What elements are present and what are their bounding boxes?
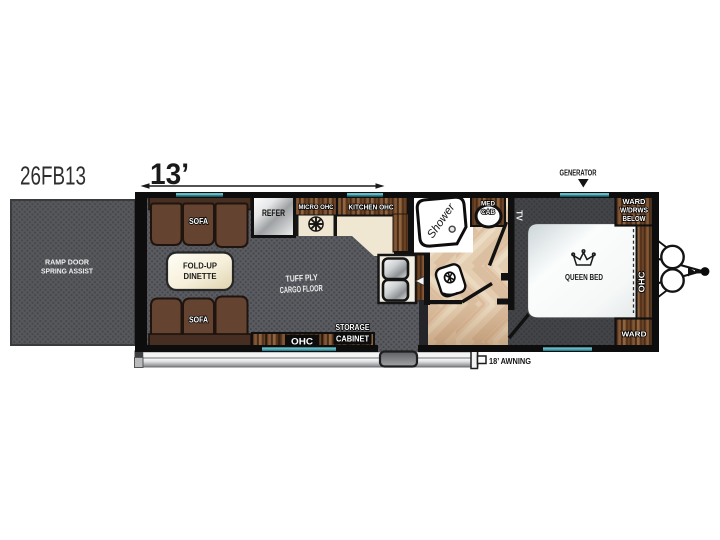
svg-text:BELOW: BELOW [623, 216, 646, 223]
svg-text:QUEEN BED: QUEEN BED [565, 272, 603, 282]
svg-text:WARD: WARD [623, 199, 646, 206]
svg-text:SOFA: SOFA [189, 217, 208, 226]
svg-text:CABINET: CABINET [336, 334, 370, 344]
svg-text:TUFF PLY: TUFF PLY [285, 272, 318, 284]
svg-text:OHC: OHC [638, 271, 647, 292]
svg-text:SPRING ASSIST: SPRING ASSIST [41, 267, 94, 276]
svg-text:18’ AWNING: 18’ AWNING [489, 356, 531, 366]
svg-text:26FB13: 26FB13 [20, 163, 86, 191]
svg-text:W/DRWS: W/DRWS [620, 208, 648, 215]
svg-text:MICRO OHC: MICRO OHC [299, 204, 334, 211]
svg-text:SOFA: SOFA [189, 316, 208, 325]
svg-text:FOLD-UP: FOLD-UP [183, 261, 217, 271]
svg-text:CAB: CAB [481, 209, 495, 216]
svg-text:RAMP DOOR: RAMP DOOR [45, 258, 90, 267]
svg-text:DINETTE: DINETTE [184, 271, 217, 281]
svg-text:REFER: REFER [262, 208, 285, 219]
svg-text:MED: MED [481, 201, 495, 208]
svg-text:STORAGE: STORAGE [336, 322, 370, 332]
svg-text:WARD: WARD [622, 330, 648, 339]
svg-text:KITCHEN OHC: KITCHEN OHC [349, 203, 395, 212]
svg-text:GENERATOR: GENERATOR [560, 168, 598, 178]
svg-text:TV: TV [515, 210, 525, 221]
